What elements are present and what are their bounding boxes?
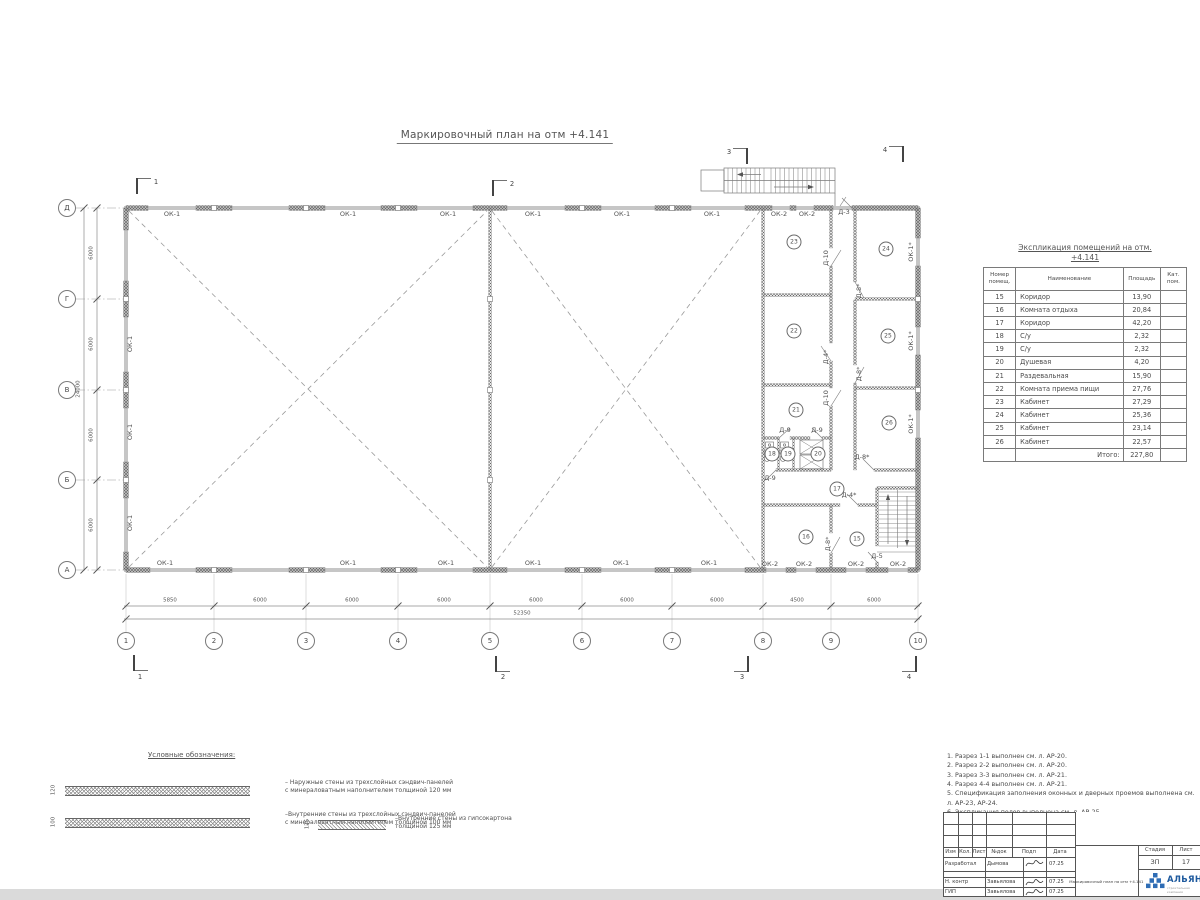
explication-cell: 24 — [984, 409, 1016, 422]
explication-cell — [1160, 422, 1186, 435]
opening-label: ОК-2 — [890, 561, 906, 568]
legend-dim-120: 120 — [51, 785, 56, 795]
opening-label: ОК-1 — [614, 211, 630, 218]
opening-label: ОК-2 — [796, 561, 812, 568]
tb-line — [943, 835, 1075, 836]
legend-dim-125: 125 — [305, 819, 310, 829]
explication-cell: Коридор — [1016, 290, 1124, 303]
explication-cell: 15,90 — [1123, 369, 1160, 382]
title-block: Изм Кол. Лист №док Подп Дата Разработал … — [943, 812, 1200, 897]
notes-list: 1. Разрез 1-1 выполнен см. л. АР-20.2. Р… — [947, 752, 1199, 817]
room-number-bubble: 26 — [882, 416, 897, 431]
opening-label: ОК-1 — [704, 211, 720, 218]
opening-label: Д-9 — [779, 427, 791, 434]
section-marker-number: 1 — [138, 673, 142, 681]
external-stair — [701, 168, 835, 206]
room-number-bubble: 22 — [787, 324, 802, 339]
explication-cell: 26 — [984, 435, 1016, 448]
tb-line — [943, 857, 1075, 858]
explication-row: 22Комната приема пищи27,76 — [984, 383, 1187, 396]
dimension-label: 5850 — [163, 598, 177, 603]
col-header-category: Кат. пом. — [1160, 267, 1186, 290]
opening-label: ОК-1 — [340, 211, 356, 218]
opening-label: ОК-1 — [701, 560, 717, 567]
legend-wall-sample-120 — [65, 786, 250, 796]
explication-cell — [1160, 396, 1186, 409]
explication-cell — [1160, 383, 1186, 396]
legend-text-3: –Внутренние стены из гипсокартона толщин… — [395, 815, 515, 832]
note-item: 5. Спецификация заполнения оконных и две… — [947, 789, 1199, 808]
tb-line — [1012, 812, 1013, 857]
tb-line — [1023, 857, 1024, 897]
tb-line — [943, 812, 1075, 813]
tb-line — [943, 847, 1075, 848]
room-number-bubble: 17 — [830, 482, 845, 497]
room-number-bubble: 24 — [879, 242, 894, 257]
explication-row: 16Комната отдыха20,84 — [984, 303, 1187, 316]
section-marker-number: 4 — [883, 146, 887, 154]
explication-cell: С/у — [1016, 330, 1124, 343]
explication-total-row: Итого: 227,80 — [984, 448, 1187, 461]
room-number-bubble: 23 — [787, 235, 802, 250]
explication-row: 21Раздевальная15,90 — [984, 369, 1187, 382]
opening-label: ОК-1 — [440, 211, 456, 218]
grid-column-bubble: 7 — [663, 632, 681, 650]
company-logo-subtext: строительная компания — [1167, 886, 1200, 894]
tb-line — [943, 887, 1075, 888]
note-item: 3. Разрез 3-3 выполнен см. л. АР-21. — [947, 771, 1199, 780]
opening-label: ОК-1* — [908, 331, 915, 350]
explication-cell: Кабинет — [1016, 435, 1124, 448]
tb-sheet-label: Лист — [1179, 848, 1192, 853]
interior-walls — [489, 208, 919, 570]
explication-row: 26Кабинет22,57 — [984, 435, 1187, 448]
explication-cell: 25,36 — [1123, 409, 1160, 422]
tb-document-title-text: Маркировочный план на отм +4.141 — [1069, 880, 1143, 884]
explication-cell — [1160, 290, 1186, 303]
tb-role-2: Н. контр — [945, 880, 968, 885]
explication-cell: 15 — [984, 290, 1016, 303]
section-marker-number: 4 — [907, 673, 911, 681]
tb-line — [1046, 812, 1047, 857]
room-number-bubble: 18 — [765, 447, 780, 462]
explication-title-line1: Экспликация помещений на отм. — [1018, 243, 1151, 252]
col-header-number: Номер помещ. — [984, 267, 1016, 290]
tb-header-list: Лист — [972, 850, 985, 855]
opening-label: Д-10 — [823, 250, 830, 266]
explication-cell — [1160, 448, 1186, 461]
tb-line — [943, 877, 1075, 878]
tb-line — [943, 871, 1075, 872]
explication-body: 15Коридор13,9016Комната отдыха20,8417Кор… — [984, 290, 1187, 448]
grid-row-bubble: В — [58, 381, 76, 399]
opening-label: ОК-1* — [908, 414, 915, 433]
tb-line — [1138, 845, 1139, 897]
explication-title-line2: +4.141 — [1071, 253, 1099, 262]
explication-cell: 23,14 — [1123, 422, 1160, 435]
explication-cell: 20,84 — [1123, 303, 1160, 316]
tb-document-title: Маркировочный план на отм +4.141 — [1076, 872, 1137, 892]
dimension-label: 6000 — [253, 598, 267, 603]
explication-cell: 17 — [984, 317, 1016, 330]
opening-label: ОК-1 — [438, 560, 454, 567]
room-number-bubble: 19 — [781, 447, 796, 462]
tb-line — [943, 896, 1200, 897]
wall-piers — [124, 206, 921, 573]
grid-column-bubble: 9 — [822, 632, 840, 650]
dimension-total: 24000 — [76, 380, 81, 397]
explication-cell: 20 — [984, 356, 1016, 369]
grid-row-bubble: Д — [58, 199, 76, 217]
legend-dim-100: 100 — [51, 817, 56, 827]
note-item: 1. Разрез 1-1 выполнен см. л. АР-20. — [947, 752, 1199, 761]
grid-column-bubble: 3 — [297, 632, 315, 650]
explication-cell: 22 — [984, 383, 1016, 396]
tb-date-1: 07.25 — [1049, 862, 1064, 867]
opening-label: Д-5 — [871, 553, 883, 560]
section-marker-number: 2 — [501, 673, 505, 681]
explication-cell: 13,90 — [1123, 290, 1160, 303]
opening-label: ОК-1 — [525, 560, 541, 567]
opening-label: Д-8* — [855, 454, 870, 461]
explication-row: 23Кабинет27,29 — [984, 396, 1187, 409]
opening-label: ОК-2 — [762, 561, 778, 568]
explication-cell: Комната приема пищи — [1016, 383, 1124, 396]
tb-name-1: Дымова — [987, 862, 1008, 867]
opening-label: Д-10 — [823, 390, 830, 406]
explication-cell: Кабинет — [1016, 422, 1124, 435]
opening-label: ОК-1 — [127, 515, 134, 531]
signature — [1025, 887, 1045, 897]
explication-row: 17Коридор42,20 — [984, 317, 1187, 330]
explication-cell: 18 — [984, 330, 1016, 343]
dimension-label: 6000 — [620, 598, 634, 603]
tb-header-ndok: №док — [991, 850, 1006, 855]
opening-label: ОК-1 — [340, 560, 356, 567]
grid-column-bubble: 4 — [389, 632, 407, 650]
explication-cell: 27,76 — [1123, 383, 1160, 396]
explication-row: 24Кабинет25,36 — [984, 409, 1187, 422]
explication-cell: 2,32 — [1123, 343, 1160, 356]
room-number-bubble: 20 — [811, 447, 826, 462]
explication-cell — [1160, 369, 1186, 382]
explication-cell: 2,32 — [1123, 330, 1160, 343]
explication-cell: 21 — [984, 369, 1016, 382]
grid-column-bubble: 10 — [909, 632, 927, 650]
dimension-label: 6000 — [437, 598, 451, 603]
company-logo-icon — [1146, 873, 1165, 889]
dimension-label: 6000 — [89, 337, 94, 351]
tb-header-podp: Подп — [1022, 850, 1036, 855]
explication-cell: 4,20 — [1123, 356, 1160, 369]
opening-label: Д-9 — [811, 427, 823, 434]
tb-role-1: Разработал — [945, 862, 976, 867]
opening-label: ОК-1 — [127, 336, 134, 352]
dimension-label: 6000 — [89, 428, 94, 442]
opening-label: Д-8* — [856, 367, 863, 382]
grid-row-bubble: Г — [58, 290, 76, 308]
opening-label: ОК-1 — [164, 211, 180, 218]
tb-header-izm: Изм — [945, 850, 956, 855]
tb-name-2: Завьялова — [987, 880, 1015, 885]
explication-table: Экспликация помещений на отм. +4.141 Ном… — [983, 243, 1187, 462]
section-marker-number: 1 — [154, 178, 158, 186]
tb-line — [1046, 857, 1047, 897]
explication-cell — [1160, 435, 1186, 448]
col-header-name: Наименование — [1016, 267, 1124, 290]
grid-column-bubble: 5 — [481, 632, 499, 650]
legend-wall-sample-100 — [65, 818, 250, 828]
explication-cell — [1160, 317, 1186, 330]
grid-column-bubble: 8 — [754, 632, 772, 650]
dimension-label: 6000 — [529, 598, 543, 603]
dimension-label: 4500 — [790, 598, 804, 603]
explication-cell: Раздевальная — [1016, 369, 1124, 382]
explication-row: 20Душевая4,20 — [984, 356, 1187, 369]
explication-cell: 25 — [984, 422, 1016, 435]
dimension-total: 52350 — [513, 611, 530, 616]
explication-cell: Душевая — [1016, 356, 1124, 369]
explication-cell — [1160, 330, 1186, 343]
tb-header-kol: Кол. — [959, 850, 971, 855]
room-number-bubble: 15 — [850, 532, 865, 547]
section-marker-number: 2 — [510, 180, 514, 188]
dimension-label: 6000 — [345, 598, 359, 603]
col-header-area: Площадь — [1123, 267, 1160, 290]
tb-line — [1172, 845, 1173, 869]
hall-diagonals — [129, 211, 760, 567]
explication-row: 19С/у2,32 — [984, 343, 1187, 356]
grid-row-bubble: А — [58, 561, 76, 579]
explication-cell: 19 — [984, 343, 1016, 356]
explication-cell: 27,29 — [1123, 396, 1160, 409]
dimension-label: 6000 — [89, 246, 94, 260]
tb-stage-value: ЗП — [1150, 859, 1159, 866]
opening-label: ОК-1 — [525, 211, 541, 218]
opening-label: ОК-1 — [613, 560, 629, 567]
opening-label: Д-8* — [856, 284, 863, 299]
room-number-bubble: 25 — [881, 329, 896, 344]
tb-line — [943, 824, 1075, 825]
tb-date-3: 07.25 — [1049, 890, 1064, 895]
tb-role-3: ГИП — [945, 890, 956, 895]
explication-row: 15Коридор13,90 — [984, 290, 1187, 303]
legend-text-1: – Наружные стены из трехслойных сэндвич-… — [285, 779, 457, 796]
outer-walls — [124, 206, 920, 572]
legend-title: Условные обозначения: — [148, 751, 235, 759]
opening-label: Д-3 — [838, 209, 850, 216]
explication-total-label: Итого: — [1016, 448, 1124, 461]
explication-cell — [1160, 343, 1186, 356]
tb-line — [943, 812, 944, 897]
opening-label: ОК-1* — [908, 242, 915, 261]
explication-cell — [1160, 409, 1186, 422]
grid-column-bubble: 6 — [573, 632, 591, 650]
dimension-label: 6000 — [867, 598, 881, 603]
tb-line — [986, 812, 987, 857]
drawing-sheet: ОК-1ОК-1ОК-1ОК-1ОК-1ОК-1ОК-2ОК-2Д-3ОК-1О… — [0, 0, 1200, 900]
section-marker-number: 3 — [740, 673, 744, 681]
explication-cell: Коридор — [1016, 317, 1124, 330]
dimension-label: 6000 — [710, 598, 724, 603]
explication-cell: Кабинет — [1016, 409, 1124, 422]
explication-row: 18С/у2,32 — [984, 330, 1187, 343]
opening-label: ОК-2 — [848, 561, 864, 568]
room-number-bubble: 21 — [789, 403, 804, 418]
internal-stair — [877, 490, 918, 552]
explication-cell: Комната отдыха — [1016, 303, 1124, 316]
explication-cell — [1160, 356, 1186, 369]
opening-label: Д-4* — [842, 492, 857, 499]
opening-label: Д-9 — [764, 475, 776, 482]
room-number-bubble: 16 — [799, 530, 814, 545]
legend-wall-sample-125 — [318, 820, 386, 830]
tb-name-3: Завьялова — [987, 890, 1015, 895]
tb-header-data: Дата — [1053, 850, 1066, 855]
grid-column-bubble: 1 — [117, 632, 135, 650]
explication-title: Экспликация помещений на отм. +4.141 — [983, 243, 1187, 263]
tb-sheet-value: 17 — [1182, 859, 1190, 866]
note-item: 4. Разрез 4-4 выполнен см. л. АР-21. — [947, 780, 1199, 789]
company-logo-text: АЛЬЯНС — [1167, 875, 1200, 885]
opening-label: Д-4* — [823, 350, 830, 365]
explication-total-value: 227,80 — [1123, 448, 1160, 461]
grid-column-bubble: 2 — [205, 632, 223, 650]
opening-label: ОК-1 — [127, 424, 134, 440]
tb-stage-label: Стадия — [1145, 848, 1165, 853]
explication-cell — [984, 448, 1016, 461]
tb-date-2: 07.25 — [1049, 880, 1064, 885]
explication-cell: 23 — [984, 396, 1016, 409]
opening-label: Д-8* — [825, 537, 832, 552]
tb-line — [985, 857, 986, 897]
tb-line — [1138, 869, 1200, 870]
column-markers — [124, 206, 921, 573]
explication-cell: 16 — [984, 303, 1016, 316]
explication-cell: Кабинет — [1016, 396, 1124, 409]
signature — [1025, 858, 1045, 869]
tb-line — [1138, 855, 1200, 856]
explication-cell: С/у — [1016, 343, 1124, 356]
plan-title: Маркировочный план на отм +4.141 — [397, 129, 613, 144]
opening-label: ОК-1 — [157, 560, 173, 567]
section-marker-number: 3 — [727, 148, 731, 156]
opening-label: ОК-2 — [799, 211, 815, 218]
grid-row-bubble: Б — [58, 471, 76, 489]
explication-cell — [1160, 303, 1186, 316]
opening-label: ОК-2 — [771, 211, 787, 218]
explication-cell: 42,20 — [1123, 317, 1160, 330]
explication-cell: 22,57 — [1123, 435, 1160, 448]
note-item: 2. Разрез 2-2 выполнен см. л. АР-20. — [947, 761, 1199, 770]
explication-row: 25Кабинет23,14 — [984, 422, 1187, 435]
dimension-label: 6000 — [89, 518, 94, 532]
